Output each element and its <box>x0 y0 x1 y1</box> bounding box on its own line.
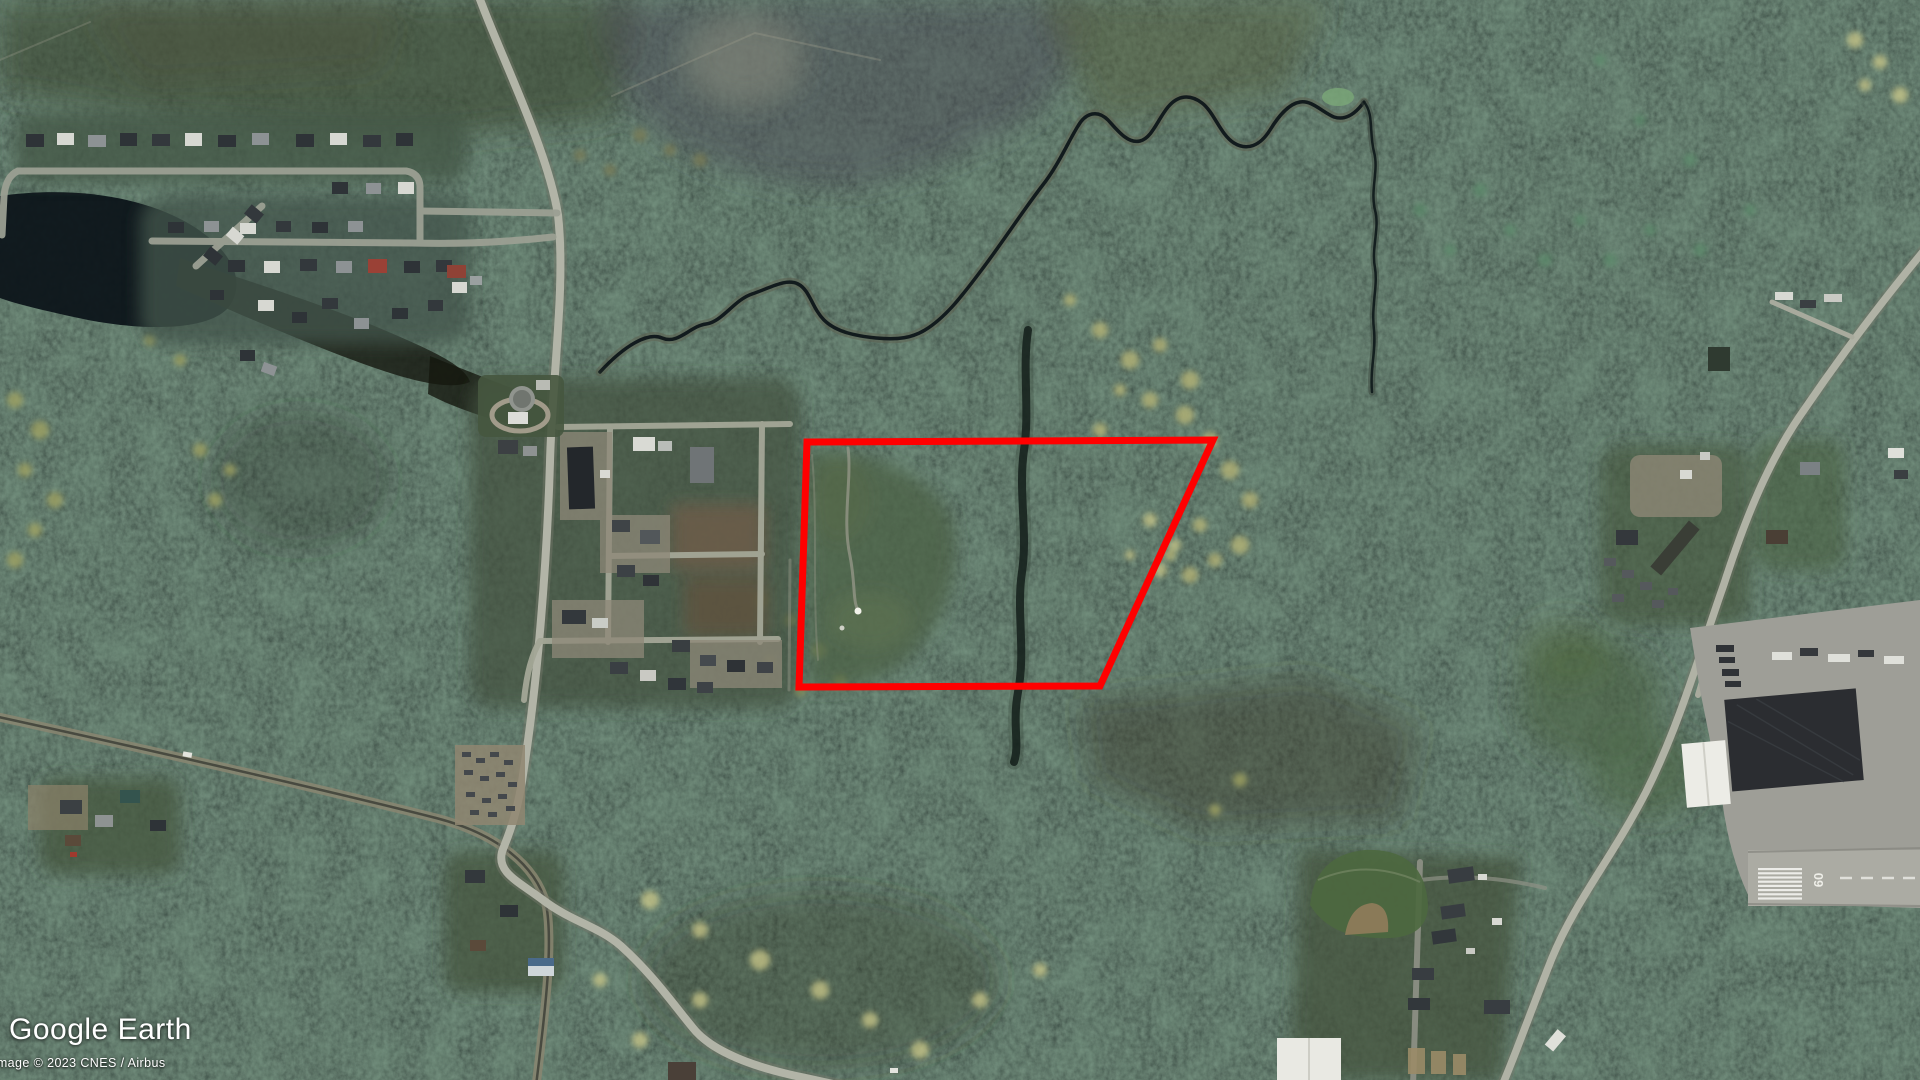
google-earth-viewport: 09 <box>0 0 1920 1080</box>
satellite-map-canvas[interactable]: 09 <box>0 0 1920 1080</box>
dark-roof-building <box>1724 688 1864 791</box>
water-treatment-plant <box>478 375 564 437</box>
hangar <box>1681 740 1730 808</box>
google-earth-logo: Google Earth <box>9 1013 192 1047</box>
runway-number-marking: 09 <box>1811 873 1826 887</box>
imagery-attribution: Image © 2023 CNES / Airbus <box>0 1056 165 1070</box>
